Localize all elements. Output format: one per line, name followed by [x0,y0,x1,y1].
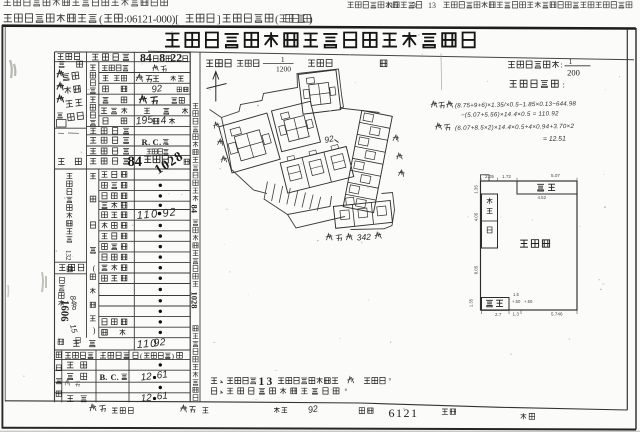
svg-text::: : [258,59,260,68]
svg-text:1.35: 1.35 [469,298,474,307]
svg-text:61: 61 [156,369,168,381]
svg-text:1200: 1200 [276,65,291,74]
svg-text:195: 195 [135,114,154,128]
svg-text:°: ° [389,377,392,385]
svg-text:84: 84 [190,205,200,214]
svg-text:12: 12 [140,393,152,405]
svg-text:12: 12 [140,371,153,383]
svg-text:61: 61 [156,391,168,403]
svg-text:1: 1 [569,57,573,66]
svg-text:200: 200 [567,68,580,78]
svg-text:C.: C. [153,137,162,147]
svg-text::06121-000)[: :06121-000)[ [124,13,179,25]
svg-text:13: 13 [428,1,436,10]
svg-text:°: ° [345,388,348,396]
svg-text:84: 84 [140,51,152,65]
svg-text:3: 3 [412,1,416,10]
svg-text:92: 92 [162,206,178,220]
svg-text:+.50: +.50 [524,299,533,304]
svg-text:(: ( [275,13,279,25]
svg-text:+.50: +.50 [512,299,521,304]
svg-text:1.5: 1.5 [513,292,519,297]
svg-text:8: 8 [72,303,77,312]
svg-text:92: 92 [307,403,319,415]
svg-text::: : [563,80,565,90]
svg-text:(: ( [99,13,103,25]
svg-text:110: 110 [136,208,159,222]
svg-text::: : [561,61,563,70]
svg-text:): ) [309,13,313,25]
svg-text:5.07: 5.07 [551,173,560,178]
svg-text:2.05: 2.05 [485,174,494,179]
svg-text:= 12.51: = 12.51 [543,136,566,143]
svg-text:1606: 1606 [58,300,71,323]
svg-text:4.05: 4.05 [474,212,479,221]
svg-text:5.746: 5.746 [551,312,563,317]
svg-text:132: 132 [64,250,72,261]
svg-text:): ) [93,326,96,335]
svg-text:1.35: 1.35 [474,185,479,194]
svg-text:]: ] [217,13,221,25]
svg-text:342: 342 [356,232,371,243]
svg-text:(: ( [93,264,96,273]
svg-text:2.7: 2.7 [495,312,502,317]
svg-text:1: 1 [281,55,285,64]
svg-text:B.: B. [100,372,108,382]
svg-text:115: 115 [386,1,398,10]
svg-text:2: 2 [158,337,166,348]
svg-text:22: 22 [170,51,182,65]
svg-text:8.05: 8.05 [474,265,479,274]
svg-text:1.72: 1.72 [502,174,511,179]
svg-text:4.52: 4.52 [538,195,547,200]
svg-text:8: 8 [159,51,165,65]
svg-text:1028: 1028 [190,292,200,309]
svg-text:84: 84 [128,154,143,170]
svg-text:C.: C. [111,372,119,382]
svg-text:3: 3 [267,376,273,388]
svg-text:1.3: 1.3 [513,312,520,317]
svg-text:1: 1 [259,376,265,388]
svg-text:R.: R. [142,137,151,147]
